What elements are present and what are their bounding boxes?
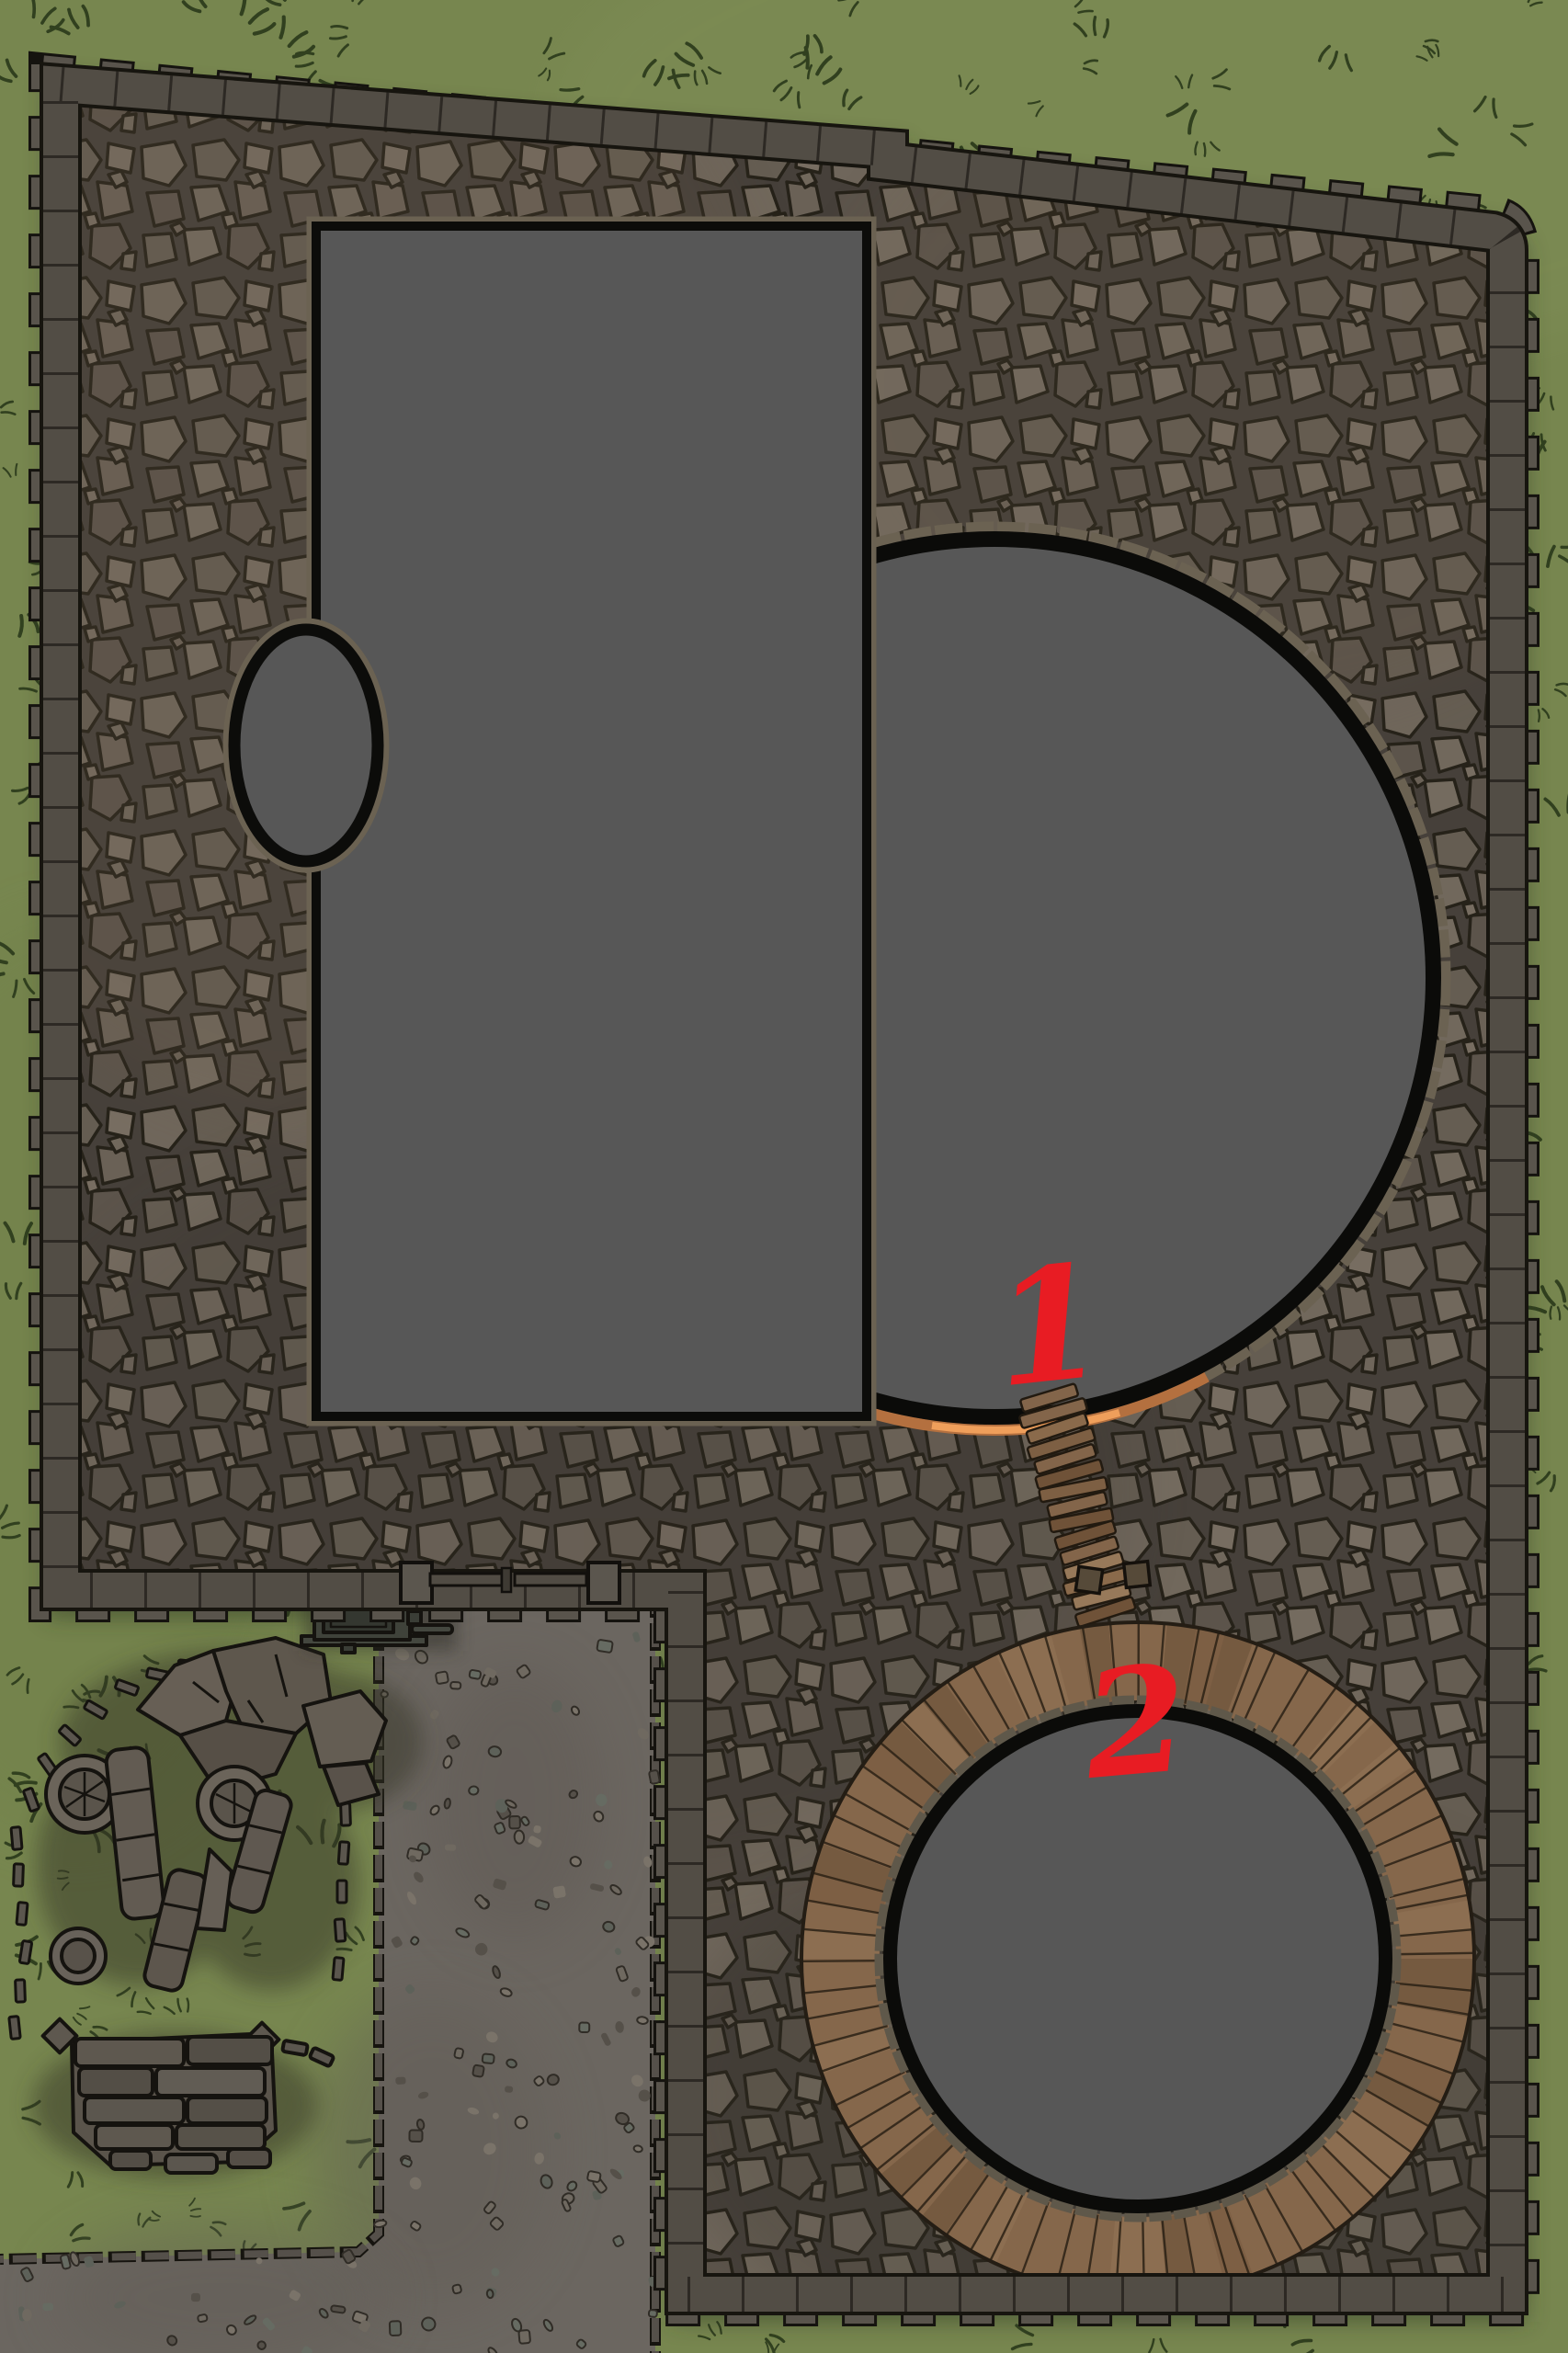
gate-post	[588, 1563, 619, 1603]
speckle	[518, 2330, 530, 2344]
speckle	[42, 2302, 53, 2311]
speckle	[395, 2077, 405, 2085]
battle-map-stage: 1 2	[0, 0, 1568, 2353]
border-stone	[341, 1803, 351, 1825]
cart-handle	[412, 1625, 452, 1633]
speckle	[331, 2305, 346, 2313]
speckle	[469, 1786, 479, 1795]
annotation-1: 1	[985, 1229, 1113, 1423]
speckle	[436, 1671, 449, 1684]
annotation-2: 2	[1076, 1631, 1194, 1813]
border-stone	[17, 1903, 28, 1926]
speckle	[409, 2130, 422, 2142]
speckle	[514, 1830, 524, 1844]
large-building-roof	[316, 226, 867, 1416]
speckle	[579, 2023, 589, 2033]
speckle	[445, 1844, 457, 1851]
speckle	[552, 1885, 566, 1899]
boardwalk-joint	[1397, 1953, 1474, 1954]
boardwalk-joint	[801, 1961, 879, 1961]
column-base	[51, 1928, 106, 1984]
speckle	[649, 2310, 657, 2317]
bridge-post	[1124, 1562, 1151, 1588]
speckle	[472, 2064, 484, 2076]
border-stone	[335, 1919, 346, 1942]
gate-center-post	[502, 1568, 511, 1592]
border-stone	[338, 1842, 349, 1865]
path-blotch	[427, 1664, 602, 1939]
speckle	[649, 1770, 660, 1784]
gate-door	[515, 1574, 586, 1586]
border-stone	[337, 1881, 347, 1903]
speckle	[191, 2293, 200, 2302]
speckle	[454, 2048, 463, 2059]
speckle	[483, 2053, 494, 2063]
speckle	[597, 1640, 613, 1653]
border-stone	[9, 2017, 20, 2040]
speckle	[509, 1816, 520, 1828]
speckle	[486, 2290, 494, 2299]
speckle	[452, 2284, 461, 2294]
speckle	[488, 1745, 502, 1757]
border-stone	[14, 1864, 24, 1886]
cart-latch	[408, 1611, 421, 1624]
speckle	[198, 2314, 208, 2323]
large-building	[311, 221, 872, 1422]
side-turret-roof	[234, 630, 378, 861]
gate-post	[401, 1563, 432, 1603]
bridge-post	[1075, 1566, 1102, 1593]
border-stone	[333, 1958, 344, 1981]
speckle	[637, 2017, 648, 2025]
speckle	[633, 2145, 642, 2154]
side-turret	[226, 621, 386, 870]
gate-door	[430, 1574, 502, 1586]
battle-map: 1 2	[0, 0, 1568, 2353]
border-stone	[16, 1980, 26, 2002]
cart-axle-stub	[342, 1644, 355, 1653]
speckle	[450, 1682, 460, 1689]
speckle	[587, 2171, 601, 2183]
border-stone	[11, 1827, 22, 1850]
speckle	[505, 2086, 513, 2093]
border-stone	[19, 1940, 32, 1963]
speckle	[390, 2321, 402, 2336]
speckle	[469, 1670, 481, 1680]
